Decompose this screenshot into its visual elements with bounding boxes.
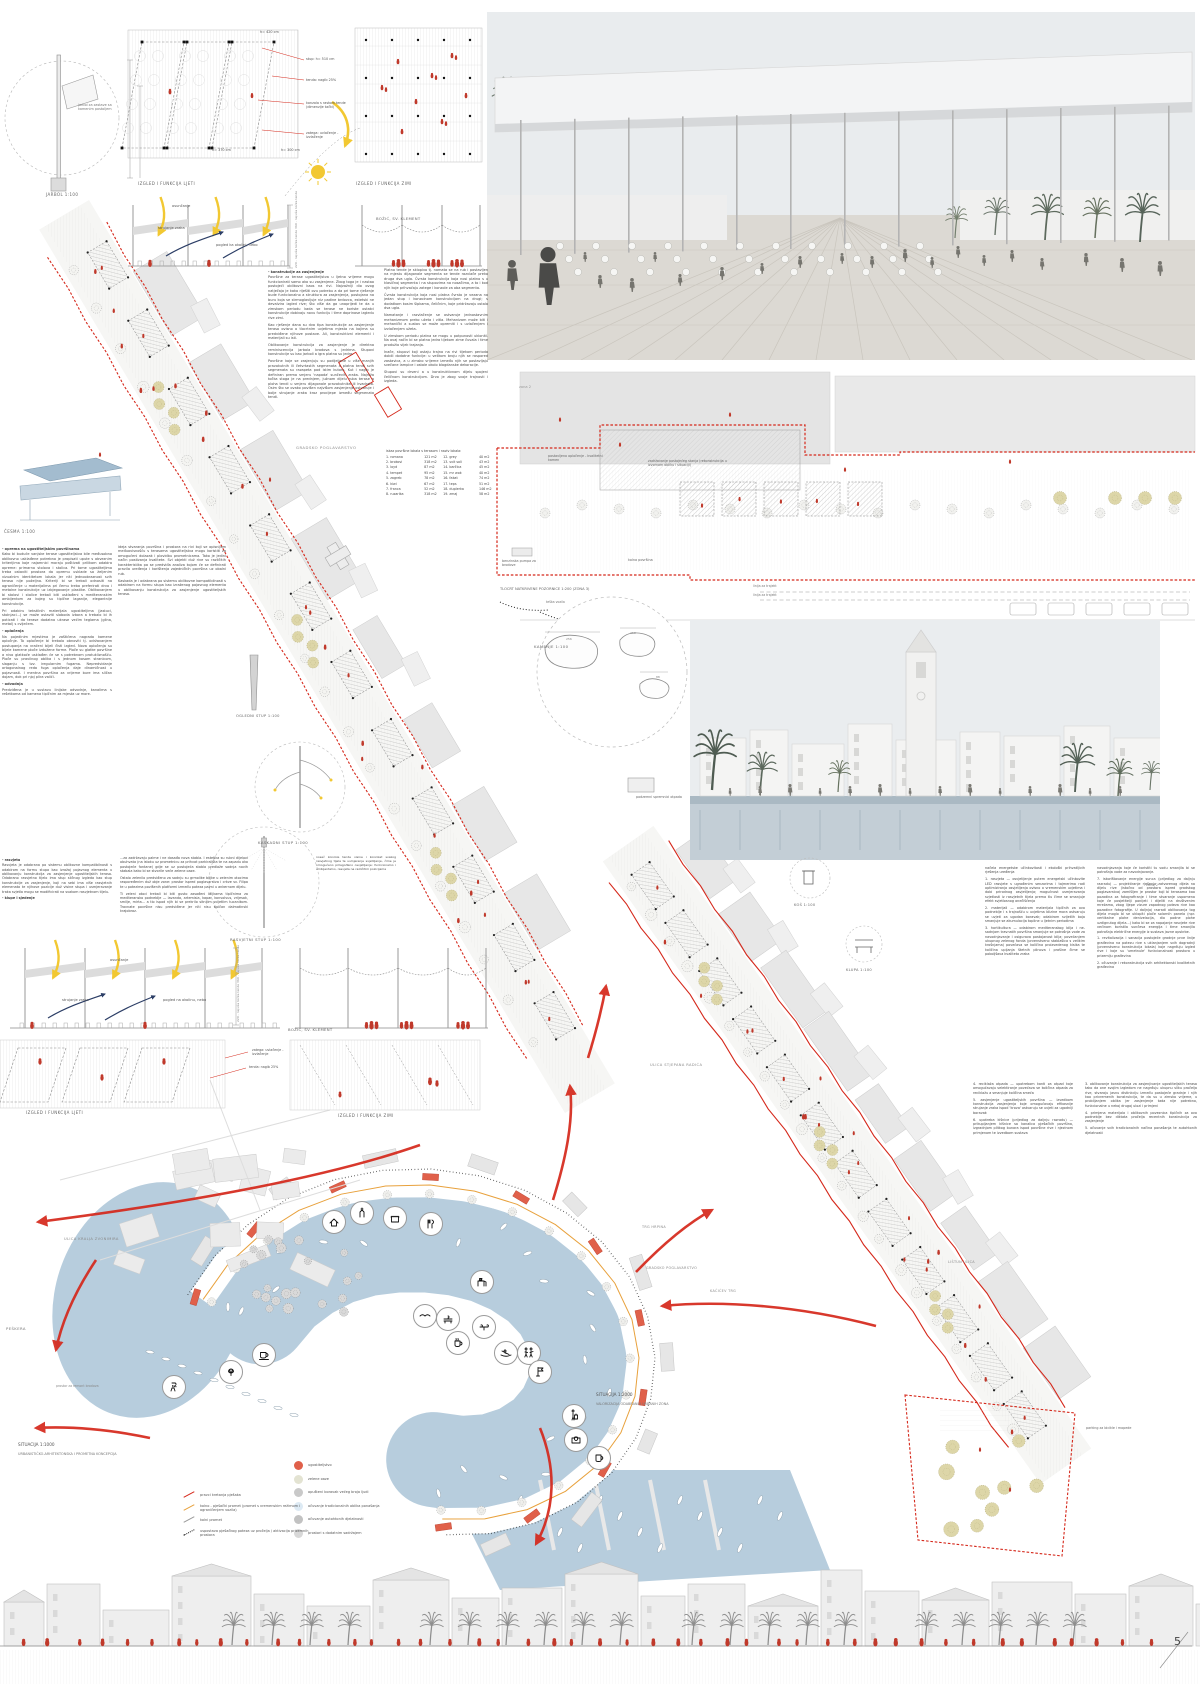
road-surface-note: kolna površina xyxy=(628,559,653,563)
stone-dim-3: 88 xyxy=(656,676,660,679)
ann-stup: stup: h= 510 cm xyxy=(306,58,334,62)
ann-tenda: tenda: nagib 25% xyxy=(306,79,336,83)
legend-item: ugostiteljstvo xyxy=(294,1461,380,1470)
text-col-uredjenje: ideja stvaranja površina i prostora na r… xyxy=(118,545,226,599)
pole-sample-caption: OGLEDNI STUP 1:100 xyxy=(236,714,280,718)
bench-caption: KLUPA 1:100 xyxy=(846,968,872,972)
kacicev-trg-label: KAČIĆEV TRG xyxy=(710,1290,736,1294)
dim-h300: h= 300 cm xyxy=(281,149,300,153)
render-waterfront xyxy=(690,620,1200,860)
dim-h420: h= 420 cm xyxy=(260,31,279,35)
situation-2000-sub: VALORIZACIJA ODABRANIH URBANIH ZONA xyxy=(596,1403,669,1407)
legend-line-symbol xyxy=(183,1491,195,1499)
text-col-nacela-a: načela energetske učinkovitosti i ekološ… xyxy=(985,866,1085,959)
peskera-label: PEŠKERA xyxy=(6,1327,26,1331)
plan-summer-caption-2: IZGLED I FUNKCIJA LJETI xyxy=(26,1111,83,1116)
boat-repair-label: prostor za remont brodova xyxy=(56,1385,99,1389)
stone-dim-1: 256 xyxy=(566,638,572,641)
view-note-2: pogled na okolinu, nebo xyxy=(163,998,206,1002)
cesma-caption: ČESMA 1:100 xyxy=(4,530,35,535)
text-col-rasvjetni-stup-note: nosač konzole tende visine i konzolet sv… xyxy=(316,856,396,874)
legend-line-symbol xyxy=(183,1504,195,1512)
stage-plan-caption: TLOCRT NATKRIVENE POZORNICE 1:200 (ZONA … xyxy=(500,587,589,591)
ann-zatega: zatega: uvlačenje - izvlačenje xyxy=(306,132,348,140)
dining-icon xyxy=(472,1315,496,1339)
street-zvonimira: ULICA KRALJA ZVONIMIRA xyxy=(64,1237,119,1241)
legend-line-symbol xyxy=(183,1529,195,1537)
ferry-line-1: linija za trajekt xyxy=(753,585,777,589)
area-table-title: iskaz površine lokala s terasom i naziv … xyxy=(386,449,498,453)
christmas-label-2: BOŽIĆ, SV. KLEMENT xyxy=(288,1028,332,1032)
area-table: iskaz površine lokala s terasom i naziv … xyxy=(386,449,498,498)
table-row: 8. ruzarika318 m219. zmaj58 m2 xyxy=(386,492,498,497)
heavy-vehicles-note: teška vozila xyxy=(546,601,565,605)
flag-icon xyxy=(528,1360,552,1384)
text-col-nacela-b: navodnjavanja koje će koristiti tu vodu … xyxy=(1097,866,1195,972)
situation-1000: SITUACIJA 1:1000 xyxy=(18,1443,55,1448)
coffee-icon xyxy=(252,1343,276,1367)
text-col-zelenilo: ...za zadržavaju palme i ne dosađa nova … xyxy=(120,856,248,916)
situation-2000: SITUACIJA 1:2000 xyxy=(596,1393,633,1398)
sec-dim-rot: 220 - najviša točka tende 360 - najviša … xyxy=(295,191,298,268)
waste-note: podzemni spremnici otpada xyxy=(636,796,684,800)
ann-konzola: konzola s rastom tende (dimenzije tački) xyxy=(306,102,358,110)
light-pole-caption: RASVJETNI STUP 1:100 xyxy=(230,938,281,942)
text-col-rasvjeta: - rasvjetaRasvjeta je odabrana po sistem… xyxy=(2,856,112,902)
plan-winter-caption-2: IZGLED I FUNKCIJA ZIMI xyxy=(338,1114,394,1119)
legend-item: zelene oaze xyxy=(294,1475,380,1484)
text-col-oprema: - oprema na ugostiteljskim površinamaKak… xyxy=(2,545,112,699)
market-icon xyxy=(383,1206,407,1230)
sun-note-2: osunčanje xyxy=(110,958,128,962)
fuel-dock-label: benzinska pumpa za brodove xyxy=(502,560,544,568)
mug-icon xyxy=(587,1446,611,1470)
stone-dim-2: 358 xyxy=(630,632,636,635)
rowing-icon xyxy=(494,1341,518,1365)
text-col-konstrukcije-a: - konstrukcije za zasjenjenjePovršine za… xyxy=(268,268,374,402)
air-note-2: strujanje zraka xyxy=(62,998,89,1002)
competition-board: jarbol za zastave sa kamenim postoljemJA… xyxy=(0,0,1200,1696)
jarbol-note: jarbol za zastave sa kamenim postoljem xyxy=(78,104,124,112)
cafe-icon xyxy=(446,1331,470,1355)
retain-note: zadržavanje postojećeg stanja (rekonstru… xyxy=(648,460,740,468)
school-icon xyxy=(470,1270,494,1294)
stones-caption: KAMENJE 1:100 xyxy=(534,645,568,649)
bike-parking-label: parking za bicikle i mopede xyxy=(1086,1427,1140,1431)
restaurant-icon xyxy=(419,1212,443,1236)
camera-icon xyxy=(564,1428,588,1452)
legend-traffic: pravci kretanja pješakakolno - pješački … xyxy=(183,1491,310,1542)
shower-icon xyxy=(162,1375,186,1399)
plan-summer-caption: IZGLED I FUNKCIJA LJETI xyxy=(138,182,195,187)
trg-hrpina-label: TRG HRPINA xyxy=(642,1226,666,1230)
tree-icon xyxy=(219,1360,243,1384)
page-number: 5 xyxy=(1174,1636,1181,1649)
text-col-konstrukcije-b: Platno tende je sklopivo tj. namata se n… xyxy=(384,268,488,386)
sec-sun: osunčanje xyxy=(172,204,190,208)
tenda-note-2: tenda: nagib 25% xyxy=(249,1066,278,1070)
house-icon xyxy=(322,1210,346,1234)
legend-item: pravci kretanja pješaka xyxy=(183,1491,310,1499)
city-hall-label-2: GRADSKO POGLAVARSTVO xyxy=(646,1267,697,1271)
bird-icon xyxy=(413,1304,437,1328)
city-hall-plan-label: GRADSKO POGLAVARSTVO xyxy=(296,446,356,450)
legend-dot xyxy=(294,1461,303,1470)
ferry-line-2: linija za trajekt xyxy=(753,594,777,598)
bin-caption: KOŠ 1:100 xyxy=(794,903,815,907)
christmas-label-1: BOŽIĆ, SV. KLEMENT xyxy=(376,217,420,221)
plan-winter-caption: IZGLED I FUNKCIJA ZIMI xyxy=(356,182,412,187)
legend-item: uspostava pješačkog poteza uz pročelja /… xyxy=(183,1529,310,1537)
paving-note: postavljeno opločenje - kvalitetni kamen xyxy=(548,455,610,463)
render1-caption: zona 2 xyxy=(519,385,531,389)
legend-item: kolno - pješački promet (promet s vremen… xyxy=(183,1504,310,1512)
situation-1000-sub: URBANISTIČKO-ARHITEKTONSKA I PROMETNA KO… xyxy=(18,1453,117,1457)
listun-label: LIŠTUN ULICA xyxy=(948,1261,975,1265)
legend-line-symbol xyxy=(183,1516,195,1524)
text-col-nacela-d: 3. oblikovanje konstrukcija za zasjenjiv… xyxy=(1085,1082,1197,1137)
board-artwork xyxy=(0,0,1200,1696)
sec-view: pogled ka okolini, nebo xyxy=(216,243,258,247)
jarbol-caption: JARBOL 1:100 xyxy=(46,193,78,198)
zatega-note-2: zatega: uvlačenje - izvlačenje xyxy=(252,1049,296,1057)
text-col-nacela-c: 4. reciklaža otpada — upotrebom kanti za… xyxy=(973,1082,1073,1137)
render-plaza xyxy=(487,12,1195,360)
dim-h370: h= 370 cm xyxy=(212,149,231,153)
sec-air: strujanje zraka xyxy=(158,226,185,230)
bench-icon xyxy=(436,1307,460,1331)
street-radica: ULICA STJEPANA RADIĆA xyxy=(650,1063,702,1067)
church-icon xyxy=(350,1201,374,1225)
sec2-dim-rot: 220 - najviša točka tende 360 - najviša … xyxy=(237,945,240,1022)
cascade-pole-caption: KASKADNI STUP 1:100 xyxy=(258,841,308,845)
legend-item: kolni promet xyxy=(183,1516,310,1524)
luggage-icon xyxy=(562,1404,586,1428)
legend-dot xyxy=(294,1475,303,1484)
